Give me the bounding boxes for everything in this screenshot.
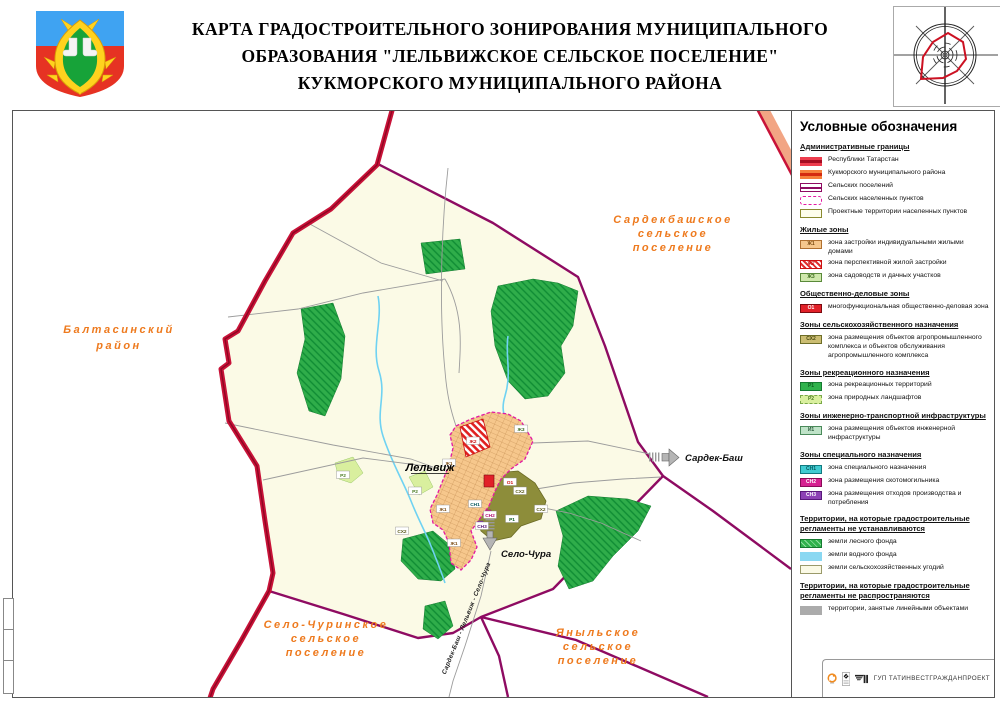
neighbor-label-yanylskoe: поселение [558,655,639,667]
cert-logo-1 [827,668,837,690]
legend-section: Жилые зоныЖ1зона застройки индивидуальны… [800,225,989,283]
legend-item-label: Кукморского муниципального района [828,169,945,178]
cert-logo-2 [842,666,850,692]
zone-chip-zh1: Ж1 [437,505,450,513]
legend-item-label: Проектные территории населенных пунктов [828,208,967,217]
selo-chura-label: Село-Чура [501,549,551,560]
legend-section-title: Зоны инженерно-транспортной инфраструкту… [800,411,989,421]
legend-item: Сельских поселений [800,182,989,192]
legend-item: территории, занятые линейными объектами [800,605,989,615]
legend-swatch-СН2: СН2 [800,478,822,487]
legend-item-label: зона размещения скотомогильника [828,477,939,486]
stamp-cell [4,661,13,692]
stamp-table [3,598,14,694]
title-line-1: КАРТА ГРАДОСТРОИТЕЛЬНОГО ЗОНИРОВАНИЯ МУН… [140,16,880,43]
stamp-cell [4,630,13,661]
legend-section-title: Зоны специального назначения [800,450,989,460]
legend-swatch [800,565,822,574]
footer-logos: ГУП ТАТИНВЕСТГРАЖДАНПРОЕКТ [822,659,994,697]
zone-chip-r2: Р2 [337,471,350,479]
legend-section-title: Территории, на которые градостроительные… [800,514,989,534]
legend-item-label: земли водного фонда [828,551,897,560]
legend-title: Условные обозначения [800,119,989,134]
zone-chip-r2: Р2 [409,487,422,495]
legend-item: Ж3зона садоводств и дачных участков [800,272,989,282]
legend-swatch-О1: О1 [800,304,822,313]
svg-text:Ж2: Ж2 [468,439,476,445]
neighbor-label-baltasinsky: район [95,340,141,352]
legend-item-label: зона размещения отходов производства и п… [828,490,989,508]
legend-section-title: Зоны сельскохозяйственного назначения [800,320,989,330]
legend-item-label: зона перспективной жилой застройки [828,259,947,268]
legend-swatch [800,170,822,179]
legend-item-label: зона садоводств и дачных участков [828,272,941,281]
legend-section: Зоны специального назначенияСН1зона спец… [800,450,989,508]
legend-item-label: зона рекреационных территорий [828,381,932,390]
legend-item: Р1зона рекреационных территорий [800,381,989,391]
svg-text:СН2: СН2 [485,513,495,519]
legend-item: СН2зона размещения скотомогильника [800,477,989,487]
business-zone [484,475,494,487]
legend-item: земли водного фонда [800,551,989,561]
zone-chip-zh2: Ж2 [467,437,480,445]
legend-swatch-СН1: СН1 [800,465,822,474]
wind-rose [893,6,1000,107]
legend-item-label: земли лесного фонда [828,538,897,547]
legend-swatch [800,606,822,615]
legend-item: Сельских населенных пунктов [800,195,989,205]
zone-chip-sh2: СХ2 [514,487,527,495]
legend-item-label: Сельских поселений [828,182,893,191]
zone-chip-sn2: СН2 [484,511,497,519]
legend-item-label: многофункциональная общественно-деловая … [828,303,989,312]
legend-item: СХ2зона размещения объектов агропромышле… [800,334,989,360]
zone-chip-sh2: СХ2 [396,527,409,535]
svg-text:СХ2: СХ2 [397,529,406,535]
legend-item: Ж2зона перспективной жилой застройки [800,259,989,269]
legend-item-label: территории, занятые линейными объектами [828,605,968,614]
page-title: КАРТА ГРАДОСТРОИТЕЛЬНОГО ЗОНИРОВАНИЯ МУН… [140,16,880,97]
legend-item: Р2зона природных ландшафтов [800,394,989,404]
legend-section: Общественно-деловые зоныО1многофункциона… [800,289,989,313]
legend-panel: Условные обозначения Административные гр… [791,111,994,697]
svg-text:Р2: Р2 [412,489,418,495]
legend-swatch-Р1: Р1 [800,382,822,391]
legend-swatch [800,183,822,192]
legend-item-label: зона специального назначения [828,464,926,473]
zone-chip-o1: О1 [504,478,517,486]
neighbor-label-sardekbash: Сардекбашское [613,214,732,226]
neighbor-label-sardekbash: сельское [638,228,708,240]
village-label: Лельвиж [405,462,456,474]
legend-swatch-Р2: Р2 [800,395,822,404]
legend-swatch [800,196,822,205]
map-frame: Ж2Ж1Ж1Ж1Ж3О1СХ2СХ2СХ2Р1Р2Р2СН1СН2СН3 Сар… [12,110,995,698]
zone-chip-zh3: Ж3 [515,425,528,433]
svg-text:Ж1: Ж1 [438,507,446,513]
coat-of-arms-icon [30,8,130,100]
legend-swatch-СН3: СН3 [800,491,822,500]
wind-rose-icon [894,7,998,104]
legend-item: Ж1зона застройки индивидуальными жилыми … [800,239,989,257]
legend-item: Кукморского муниципального района [800,169,989,179]
svg-text:Р1: Р1 [509,517,515,523]
sardek-bash-label: Сардек-Баш [685,453,743,464]
title-line-2: ОБРАЗОВАНИЯ "ЛЕЛЬВИЖСКОЕ СЕЛЬСКОЕ ПОСЕЛЕ… [140,43,880,70]
zone-chip-sh2: СХ2 [535,505,548,513]
map-sheet: КАРТА ГРАДОСТРОИТЕЛЬНОГО ЗОНИРОВАНИЯ МУН… [0,0,1000,706]
legend-section-title: Общественно-деловые зоны [800,289,989,299]
legend-item: Республики Татарстан [800,156,989,166]
legend-sections: Административные границыРеспублики Татар… [800,142,989,615]
zone-chip-sn1: СН1 [469,500,482,508]
legend-section-title: Территории, на которые градостроительные… [800,581,989,601]
svg-text:СХ2: СХ2 [536,507,545,513]
legend-swatch-Ж3: Ж3 [800,273,822,282]
svg-text:О1: О1 [507,480,514,486]
legend-item: земли сельскохозяйственных угодий [800,564,989,574]
legend-swatch-Ж1: Ж1 [800,240,822,249]
coat-of-arms [30,8,130,100]
legend-item: И1зона размещения объектов инженерной ин… [800,425,989,443]
svg-text:СН1: СН1 [470,502,480,508]
legend-item-label: зона размещения объектов инженерной инфр… [828,425,989,443]
legend-section: Зоны сельскохозяйственного назначенияСХ2… [800,320,989,360]
neighbor-label-yanylskoe: сельское [563,641,633,653]
neighbor-label-yanylskoe: Яныльское [555,627,640,639]
legend-swatch-Ж2: Ж2 [800,260,822,269]
legend-item-label: Республики Татарстан [828,156,899,165]
svg-text:Р2: Р2 [340,473,346,479]
zone-chip-r1: Р1 [506,515,519,523]
legend-section: Территории, на которые градостроительные… [800,581,989,615]
map-canvas: Ж2Ж1Ж1Ж1Ж3О1СХ2СХ2СХ2Р1Р2Р2СН1СН2СН3 Сар… [13,111,791,697]
svg-text:СН3: СН3 [477,524,487,530]
legend-swatch [800,157,822,166]
neighbor-label-sardekbash: поселение [633,242,714,254]
legend-section: Зоны рекреационного назначенияР1зона рек… [800,368,989,405]
legend-item-label: земли сельскохозяйственных угодий [828,564,944,573]
legend-item: земли лесного фонда [800,538,989,548]
legend-section: Административные границыРеспублики Татар… [800,142,989,218]
legend-section: Территории, на которые градостроительные… [800,514,989,574]
legend-item-label: зона природных ландшафтов [828,394,921,403]
legend-swatch [800,539,822,548]
legend-section-title: Жилые зоны [800,225,989,235]
legend-swatch-И1: И1 [800,426,822,435]
legend-item: СН1зона специального назначения [800,464,989,474]
svg-text:СХ2: СХ2 [515,489,524,495]
svg-text:Ж1: Ж1 [449,541,457,547]
stamp-cell [4,599,13,630]
legend-section-title: Зоны рекреационного назначения [800,368,989,378]
legend-section: Зоны инженерно-транспортной инфраструкту… [800,411,989,443]
legend-item-label: зона застройки индивидуальными жилыми до… [828,239,989,257]
legend-item: СН3зона размещения отходов производства … [800,490,989,508]
neighbor-label-baltasinsky: Балтасинский [63,324,174,336]
legend-item: Проектные территории населенных пунктов [800,208,989,218]
legend-item-label: Сельских населенных пунктов [828,195,924,204]
legend-item-label: зона размещения объектов агропромышленно… [828,334,989,360]
neighbor-label-selo-churinskoe: Село-Чуринское [264,619,389,631]
svg-text:Ж3: Ж3 [516,427,524,433]
zone-chip-sn3: СН3 [476,522,489,530]
legend-swatch [800,552,822,561]
title-line-3: КУКМОРСКОГО МУНИЦИПАЛЬНОГО РАЙОНА [140,70,880,97]
legend-item: О1многофункциональная общественно-делова… [800,303,989,313]
neighbor-label-selo-churinskoe: поселение [286,647,367,659]
legend-section-title: Административные границы [800,142,989,152]
neighbor-label-selo-churinskoe: сельское [291,633,361,645]
zone-chip-zh1: Ж1 [448,539,461,547]
legend-swatch [800,209,822,218]
org-name: ГУП ТАТИНВЕСТГРАЖДАНПРОЕКТ [874,675,990,682]
legend-swatch-СХ2: СХ2 [800,335,822,344]
tigp-logo [855,669,868,689]
